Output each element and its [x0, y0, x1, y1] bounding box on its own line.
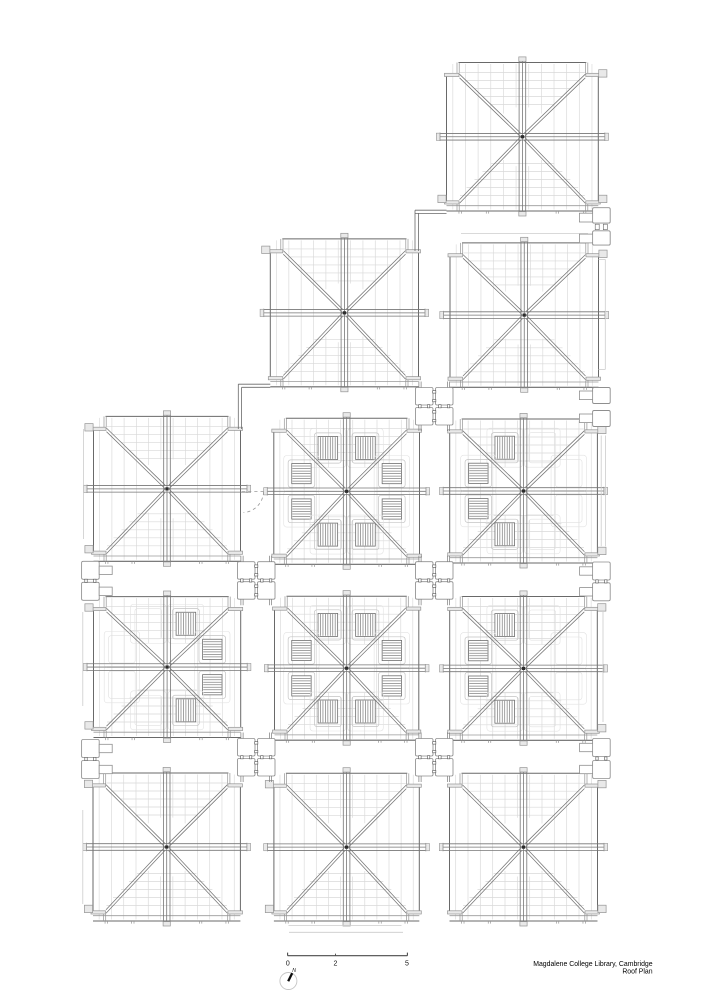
svg-text:Roof Plan: Roof Plan [622, 969, 652, 976]
svg-text:2: 2 [334, 960, 338, 967]
svg-text:0: 0 [286, 960, 290, 967]
svg-text:Magdalene College Library, Cam: Magdalene College Library, Cambridge [533, 961, 653, 968]
svg-text:5: 5 [405, 960, 409, 967]
svg-text:N: N [292, 968, 296, 974]
